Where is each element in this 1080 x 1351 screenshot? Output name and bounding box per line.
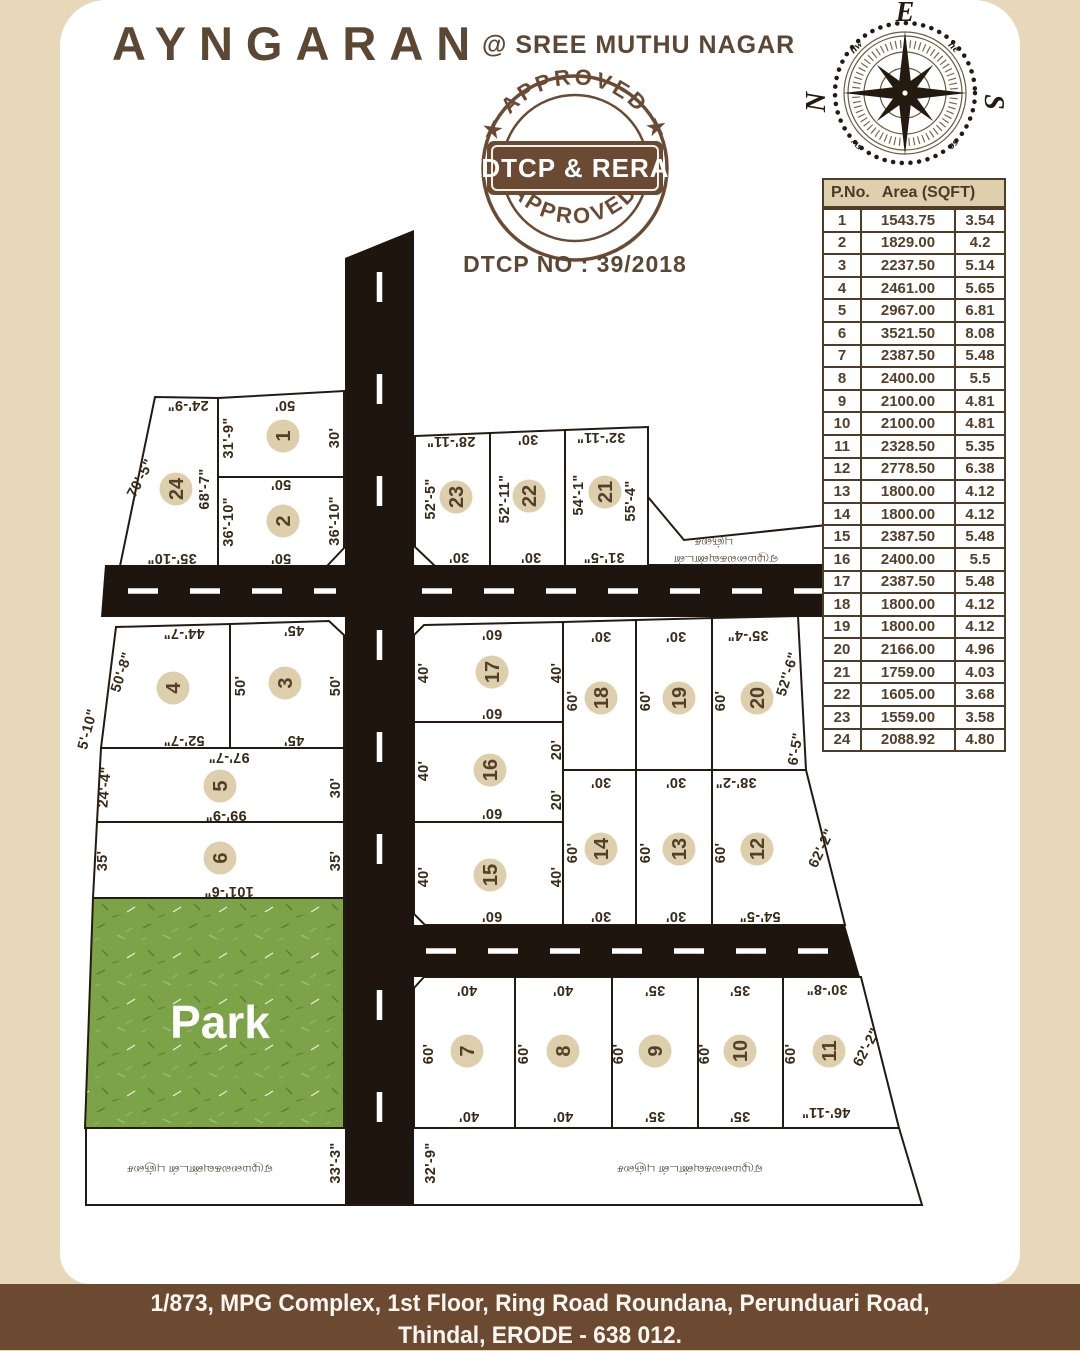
dimension-label: 30' bbox=[518, 431, 538, 447]
table-cell: 4.12 bbox=[955, 616, 1005, 639]
table-cell: 23 bbox=[823, 706, 861, 729]
plot-marker-18: 18 bbox=[585, 682, 618, 715]
table-cell: 6.81 bbox=[955, 299, 1005, 322]
table-cell: 2237.50 bbox=[861, 254, 955, 277]
dimension-label: 20' bbox=[549, 790, 565, 810]
dimension-label: 36'-10" bbox=[221, 497, 237, 547]
dimension-label: 99'-9" bbox=[205, 807, 246, 823]
plot-marker-20: 20 bbox=[741, 682, 774, 715]
table-cell: 1559.00 bbox=[861, 706, 955, 729]
area-table-header: P.No. Area (SQFT) bbox=[822, 178, 1006, 208]
dimension-label: 5'-10" bbox=[75, 707, 101, 751]
table-cell: 2387.50 bbox=[861, 571, 955, 594]
plot-marker-24: 24 bbox=[160, 473, 193, 506]
plot-marker-7: 7 bbox=[451, 1035, 484, 1068]
plot-marker-9: 9 bbox=[639, 1035, 672, 1068]
svg-text:19: 19 bbox=[669, 687, 691, 709]
dimension-label: 30' bbox=[449, 549, 469, 565]
dimension-label: 38'-2" bbox=[715, 774, 756, 790]
dimension-label: 30' bbox=[328, 778, 344, 798]
table-cell: 2461.00 bbox=[861, 277, 955, 300]
table-cell: 18 bbox=[823, 593, 861, 616]
table-row: 92100.004.81 bbox=[823, 390, 1005, 413]
table-cell: 2 bbox=[823, 232, 861, 255]
plot-marker-22: 22 bbox=[513, 480, 546, 513]
svg-text:21: 21 bbox=[595, 481, 617, 503]
table-row: 21829.004.2 bbox=[823, 232, 1005, 255]
table-cell: 5.48 bbox=[955, 571, 1005, 594]
table-cell: 21 bbox=[823, 661, 861, 684]
compass-sw: sw bbox=[847, 136, 865, 154]
table-cell: 4.03 bbox=[955, 661, 1005, 684]
plot-marker-4: 4 bbox=[157, 672, 190, 705]
table-row: 202166.004.96 bbox=[823, 638, 1005, 661]
table-row: 172387.505.48 bbox=[823, 571, 1005, 594]
table-cell: 24 bbox=[823, 729, 861, 752]
plot-marker-13: 13 bbox=[663, 833, 696, 866]
plot-marker-15: 15 bbox=[474, 859, 507, 892]
plot-marker-21: 21 bbox=[589, 476, 622, 509]
approval-stamp: ★ APPROVED ★ ★ APPROVED ★ ★ DTCP & RERA … bbox=[449, 64, 701, 277]
dimension-label: 40' bbox=[549, 867, 565, 887]
dimension-label: 40' bbox=[553, 1108, 573, 1124]
table-cell: 9 bbox=[823, 390, 861, 413]
table-cell: 4.81 bbox=[955, 390, 1005, 413]
table-cell: 2400.00 bbox=[861, 367, 955, 390]
table-cell: 5.5 bbox=[955, 548, 1005, 571]
dimension-label: 60' bbox=[421, 1044, 437, 1064]
plot-table-body: 11543.753.5421829.004.232237.505.1442461… bbox=[823, 209, 1005, 751]
dimension-label: 40' bbox=[416, 663, 432, 683]
dimension-label: 60' bbox=[482, 805, 502, 821]
table-cell: 22 bbox=[823, 683, 861, 706]
table-row: 231559.003.58 bbox=[823, 706, 1005, 729]
table-row: 52967.006.81 bbox=[823, 299, 1005, 322]
dimension-label: 30' bbox=[666, 908, 686, 924]
plot-marker-10: 10 bbox=[724, 1035, 757, 1068]
svg-text:18: 18 bbox=[591, 687, 613, 709]
dimension-label: 40' bbox=[416, 867, 432, 887]
table-cell: 14 bbox=[823, 503, 861, 526]
table-row: 32237.505.14 bbox=[823, 254, 1005, 277]
dimension-label: 60' bbox=[565, 843, 581, 863]
svg-text:2: 2 bbox=[273, 515, 295, 526]
dimension-label: 54'-1" bbox=[571, 474, 587, 515]
table-cell: 3 bbox=[823, 254, 861, 277]
table-cell: 3521.50 bbox=[861, 322, 955, 345]
plot-marker-12: 12 bbox=[741, 833, 774, 866]
plot-marker-2: 2 bbox=[267, 505, 300, 538]
compass-ne: ne bbox=[946, 39, 962, 55]
plot-marker-14: 14 bbox=[585, 833, 618, 866]
dimension-label: 60' bbox=[783, 1044, 799, 1064]
table-cell: 4 bbox=[823, 277, 861, 300]
table-row: 112328.505.35 bbox=[823, 435, 1005, 458]
table-cell: 10 bbox=[823, 412, 861, 435]
table-cell: 2387.50 bbox=[861, 345, 955, 368]
table-cell: 5.65 bbox=[955, 277, 1005, 300]
table-cell: 1543.75 bbox=[861, 209, 955, 232]
table-cell: 8.08 bbox=[955, 322, 1005, 345]
compass-north: N bbox=[801, 90, 832, 113]
dimension-label: 97'-7" bbox=[208, 749, 249, 765]
plot-marker-5: 5 bbox=[204, 770, 237, 803]
table-cell: 19 bbox=[823, 616, 861, 639]
dimension-label: 33'-3" bbox=[328, 1142, 344, 1183]
area-table: P.No. Area (SQFT) 11543.753.5421829.004.… bbox=[822, 178, 1006, 752]
dimension-label: 35' bbox=[730, 1108, 750, 1124]
table-row: 82400.005.5 bbox=[823, 367, 1005, 390]
dimension-label: 54'-5" bbox=[739, 908, 780, 924]
table-row: 242088.924.80 bbox=[823, 729, 1005, 752]
dimension-label: 24'-9" bbox=[167, 397, 208, 413]
svg-text:14: 14 bbox=[591, 837, 613, 860]
compass-south: S bbox=[978, 94, 1009, 110]
table-row: 72387.505.48 bbox=[823, 345, 1005, 368]
table-cell: 6.38 bbox=[955, 458, 1005, 481]
dimension-label: 52'-11" bbox=[497, 475, 513, 524]
table-cell: 2387.50 bbox=[861, 525, 955, 548]
table-row: 221605.003.68 bbox=[823, 683, 1005, 706]
boundary-label-tamil: ஏழுமலைகவுண்டன் bbox=[673, 552, 778, 565]
plot-marker-1: 1 bbox=[267, 420, 300, 453]
boundary-label-tamil: புஞ்சை bbox=[694, 535, 733, 548]
dimension-label: 60' bbox=[482, 705, 502, 721]
dimension-label: 60' bbox=[638, 691, 654, 711]
table-cell: 15 bbox=[823, 525, 861, 548]
dimension-label: 30' bbox=[591, 628, 611, 644]
dimension-label: 32'-9" bbox=[423, 1142, 439, 1183]
dimension-label: 40' bbox=[549, 663, 565, 683]
table-cell: 5.5 bbox=[955, 367, 1005, 390]
svg-text:20: 20 bbox=[747, 687, 769, 709]
table-cell: 5.14 bbox=[955, 254, 1005, 277]
table-cell: 17 bbox=[823, 571, 861, 594]
table-cell: 1605.00 bbox=[861, 683, 955, 706]
svg-text:16: 16 bbox=[480, 759, 502, 781]
dimension-label: 35' bbox=[645, 1108, 665, 1124]
table-row: 152387.505.48 bbox=[823, 525, 1005, 548]
col-pno: P.No. bbox=[831, 184, 870, 202]
table-cell: 3.54 bbox=[955, 209, 1005, 232]
table-cell: 1 bbox=[823, 209, 861, 232]
table-cell: 4.12 bbox=[955, 480, 1005, 503]
dimension-label: 35' bbox=[328, 851, 344, 871]
table-cell: 3.58 bbox=[955, 706, 1005, 729]
dtcp-number: DTCP NO : 39/2018 bbox=[463, 251, 687, 277]
footer-address-line2: Thindal, ERODE - 638 012. bbox=[27, 1320, 1053, 1351]
boundary-label-tamil: ஏழுமலைகவுண்டன் புஞ்சை bbox=[127, 1162, 273, 1175]
dimension-label: 40' bbox=[457, 982, 477, 998]
dimension-label: 44'-7" bbox=[163, 625, 204, 641]
plot-marker-17: 17 bbox=[476, 656, 509, 689]
dimension-label: 60' bbox=[516, 1044, 532, 1064]
svg-text:22: 22 bbox=[519, 485, 541, 507]
compass-nw: nw bbox=[847, 38, 865, 56]
table-cell: 2088.92 bbox=[861, 729, 955, 752]
table-cell: 1829.00 bbox=[861, 232, 955, 255]
table-cell: 2778.50 bbox=[861, 458, 955, 481]
table-row: 63521.508.08 bbox=[823, 322, 1005, 345]
table-row: 162400.005.5 bbox=[823, 548, 1005, 571]
table-row: 11543.753.54 bbox=[823, 209, 1005, 232]
svg-text:6: 6 bbox=[210, 852, 232, 863]
dimension-label: 60' bbox=[565, 691, 581, 711]
dimension-label: 35' bbox=[730, 982, 750, 998]
dimension-label: 60' bbox=[482, 626, 502, 642]
svg-text:1: 1 bbox=[273, 430, 295, 441]
svg-text:10: 10 bbox=[730, 1040, 752, 1062]
stamp-banner-label: ★ DTCP & RERA ★ bbox=[449, 153, 701, 183]
brand-title: AYNGARAN bbox=[112, 16, 483, 71]
dimension-label: 52'-5" bbox=[423, 478, 439, 519]
table-cell: 1759.00 bbox=[861, 661, 955, 684]
dimension-label: 35'-4" bbox=[727, 627, 768, 643]
table-row: 211759.004.03 bbox=[823, 661, 1005, 684]
table-cell: 6 bbox=[823, 322, 861, 345]
table-row: 131800.004.12 bbox=[823, 480, 1005, 503]
plot-marker-16: 16 bbox=[474, 754, 507, 787]
svg-text:12: 12 bbox=[747, 838, 769, 860]
dimension-label: 35' bbox=[645, 982, 665, 998]
col-area: Area (SQFT) bbox=[882, 184, 975, 202]
table-cell: 4.12 bbox=[955, 593, 1005, 616]
dimension-label: 30'-8" bbox=[806, 981, 847, 997]
plot-marker-19: 19 bbox=[663, 682, 696, 715]
dimension-label: 40' bbox=[459, 1108, 479, 1124]
dimension-label: 60' bbox=[713, 843, 729, 863]
table-row: 181800.004.12 bbox=[823, 593, 1005, 616]
dimension-label: 68'-7" bbox=[197, 468, 213, 509]
table-cell: 4.12 bbox=[955, 503, 1005, 526]
table-cell: 5.48 bbox=[955, 525, 1005, 548]
table-row: 122778.506.38 bbox=[823, 458, 1005, 481]
table-cell: 5 bbox=[823, 299, 861, 322]
dimension-label: 30' bbox=[327, 428, 343, 448]
dimension-label: 30' bbox=[591, 908, 611, 924]
svg-text:9: 9 bbox=[645, 1045, 667, 1056]
svg-text:7: 7 bbox=[457, 1045, 479, 1056]
compass-se: se bbox=[946, 137, 962, 153]
table-cell: 1800.00 bbox=[861, 616, 955, 639]
dimension-label: 40' bbox=[553, 982, 573, 998]
svg-text:17: 17 bbox=[482, 661, 504, 683]
plot-marker-8: 8 bbox=[547, 1035, 580, 1068]
dimension-label: 30' bbox=[666, 628, 686, 644]
table-cell: 2100.00 bbox=[861, 412, 955, 435]
dimension-label: 31'-5" bbox=[583, 549, 624, 565]
table-cell: 20 bbox=[823, 638, 861, 661]
table-cell: 5.35 bbox=[955, 435, 1005, 458]
svg-text:23: 23 bbox=[446, 486, 468, 508]
svg-text:13: 13 bbox=[669, 838, 691, 860]
table-cell: 5.48 bbox=[955, 345, 1005, 368]
dimension-label: 30' bbox=[666, 774, 686, 790]
table-row: 141800.004.12 bbox=[823, 503, 1005, 526]
table-cell: 12 bbox=[823, 458, 861, 481]
table-cell: 2967.00 bbox=[861, 299, 955, 322]
svg-text:3: 3 bbox=[275, 677, 297, 688]
table-cell: 2400.00 bbox=[861, 548, 955, 571]
dimension-label: 36'-10" bbox=[327, 496, 343, 546]
dimension-label: 30' bbox=[521, 549, 541, 565]
plot-marker-11: 11 bbox=[813, 1035, 846, 1068]
dimension-label: 50' bbox=[328, 676, 344, 696]
svg-text:11: 11 bbox=[819, 1040, 841, 1061]
plot-marker-6: 6 bbox=[204, 842, 237, 875]
dimension-label: 50' bbox=[275, 397, 295, 413]
park-label: Park bbox=[170, 996, 270, 1048]
dimension-label: 35'-10" bbox=[147, 550, 197, 566]
table-cell: 2100.00 bbox=[861, 390, 955, 413]
table-cell: 11 bbox=[823, 435, 861, 458]
dimension-label: 28'-11" bbox=[427, 433, 476, 449]
dimension-label: 50' bbox=[271, 550, 291, 566]
dimension-label: 60' bbox=[638, 843, 654, 863]
footer-bar: 1/873, MPG Complex, 1st Floor, Ring Road… bbox=[0, 1284, 1080, 1350]
plot-marker-23: 23 bbox=[440, 481, 473, 514]
dimension-label: 32'-11" bbox=[577, 429, 626, 445]
dimension-label: 30' bbox=[591, 774, 611, 790]
dimension-label: 45' bbox=[284, 622, 304, 638]
dimension-label: 20' bbox=[549, 740, 565, 760]
table-cell: 13 bbox=[823, 480, 861, 503]
dimension-label: 35' bbox=[95, 851, 111, 871]
dimension-label: 55'-4" bbox=[623, 480, 639, 521]
boundary-label-tamil: ஏழுமலைகவுண்டன் புஞ்சை bbox=[617, 1162, 763, 1175]
table-row: 191800.004.12 bbox=[823, 616, 1005, 639]
dimension-label: 60' bbox=[611, 1044, 627, 1064]
table-cell: 8 bbox=[823, 367, 861, 390]
table-row: 102100.004.81 bbox=[823, 412, 1005, 435]
table-cell: 3.68 bbox=[955, 683, 1005, 706]
table-cell: 4.80 bbox=[955, 729, 1005, 752]
dimension-label: 60' bbox=[697, 1044, 713, 1064]
dimension-label: 50' bbox=[271, 476, 291, 492]
dimension-label: 45' bbox=[284, 732, 304, 748]
table-cell: 1800.00 bbox=[861, 480, 955, 503]
table-cell: 4.96 bbox=[955, 638, 1005, 661]
table-cell: 16 bbox=[823, 548, 861, 571]
svg-text:15: 15 bbox=[480, 864, 502, 886]
footer-address-line1: 1/873, MPG Complex, 1st Floor, Ring Road… bbox=[27, 1284, 1053, 1320]
dimension-label: 60' bbox=[482, 908, 502, 924]
dimension-label: 50' bbox=[233, 676, 249, 696]
table-cell: 4.81 bbox=[955, 412, 1005, 435]
svg-text:24: 24 bbox=[166, 477, 188, 500]
table-cell: 1800.00 bbox=[861, 503, 955, 526]
table-row: 42461.005.65 bbox=[823, 277, 1005, 300]
dimension-label: 101'-6" bbox=[204, 883, 254, 899]
plot-marker-3: 3 bbox=[269, 667, 302, 700]
dimension-label: 52'-7" bbox=[163, 732, 204, 748]
svg-text:8: 8 bbox=[553, 1045, 575, 1056]
svg-text:5: 5 bbox=[210, 780, 232, 791]
table-cell: 4.2 bbox=[955, 232, 1005, 255]
dimension-label: 31'-9" bbox=[221, 417, 237, 458]
dimension-label: 40' bbox=[416, 761, 432, 781]
table-cell: 2328.50 bbox=[861, 435, 955, 458]
brand-location: @ SREE MUTHU NAGAR bbox=[482, 31, 795, 60]
dimension-label: 46'-11" bbox=[802, 1104, 851, 1120]
table-cell: 2166.00 bbox=[861, 638, 955, 661]
svg-text:4: 4 bbox=[163, 682, 185, 694]
compass-east: E bbox=[895, 0, 915, 28]
dimension-label: 60' bbox=[713, 691, 729, 711]
table-cell: 1800.00 bbox=[861, 593, 955, 616]
table-cell: 7 bbox=[823, 345, 861, 368]
compass-rose: E S W N ne se sw nw bbox=[801, 0, 1009, 206]
